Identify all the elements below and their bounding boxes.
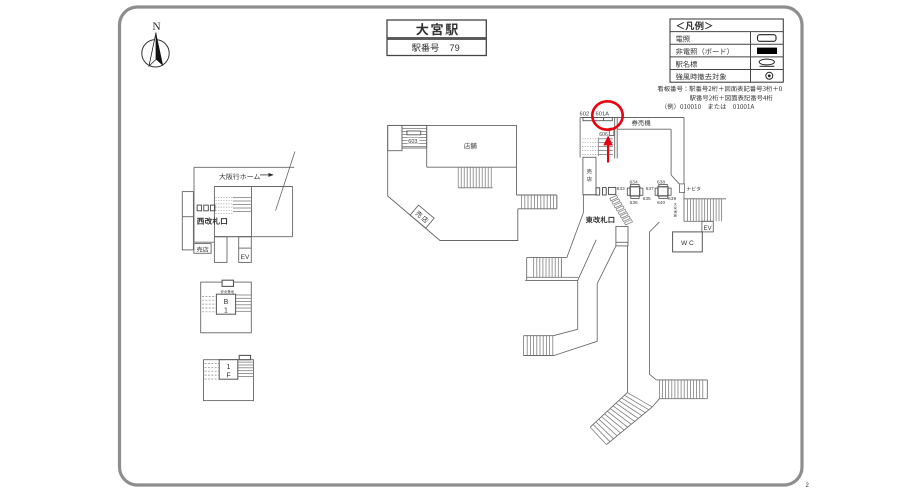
svg-text:1: 1 bbox=[227, 364, 231, 371]
svg-text:637: 637 bbox=[646, 186, 654, 192]
svg-text:635: 635 bbox=[643, 196, 651, 202]
svg-text:606: 606 bbox=[599, 132, 608, 138]
svg-text:79: 79 bbox=[450, 43, 460, 53]
svg-text:603: 603 bbox=[408, 139, 417, 145]
svg-text:638: 638 bbox=[657, 180, 665, 186]
svg-text:602: 602 bbox=[580, 111, 590, 117]
svg-text:B: B bbox=[224, 299, 229, 306]
svg-text:EV: EV bbox=[241, 254, 250, 261]
svg-text:639: 639 bbox=[668, 196, 676, 202]
svg-text:601A: 601A bbox=[596, 111, 610, 117]
svg-text:640: 640 bbox=[657, 200, 665, 206]
svg-text:EV: EV bbox=[704, 226, 712, 232]
svg-text:1: 1 bbox=[224, 307, 228, 314]
svg-text:F: F bbox=[226, 372, 230, 379]
svg-text:633: 633 bbox=[617, 186, 625, 192]
svg-text:634: 634 bbox=[630, 180, 638, 186]
svg-text:636: 636 bbox=[630, 200, 638, 206]
svg-text:W C: W C bbox=[681, 240, 694, 247]
svg-text:N: N bbox=[152, 21, 161, 33]
